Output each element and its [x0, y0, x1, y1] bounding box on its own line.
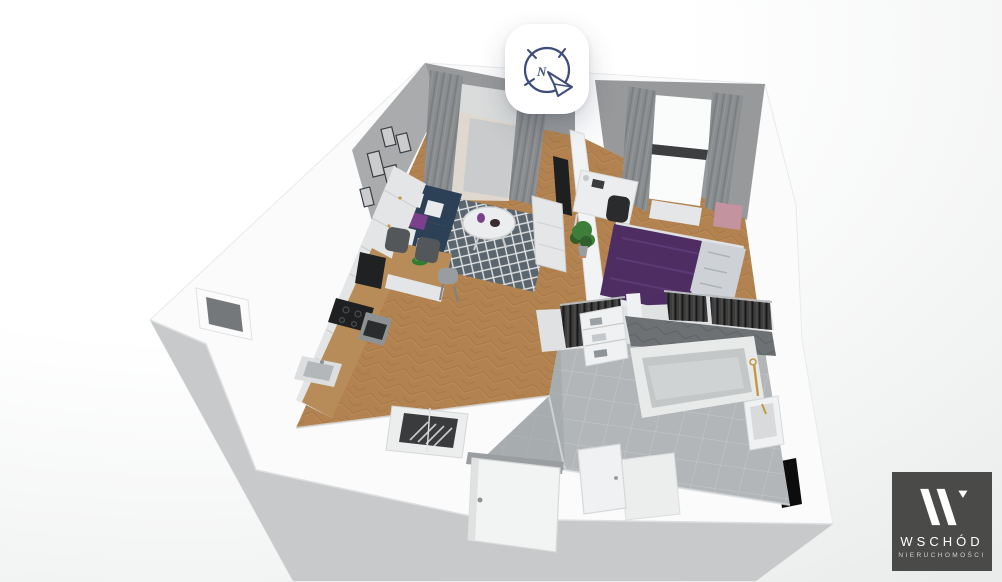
nightstand-pink — [713, 202, 743, 230]
compass-north-label: N — [536, 64, 547, 79]
floorplan-3d-view[interactable] — [0, 0, 1002, 582]
shelf-unit — [580, 306, 628, 366]
entrance-door — [468, 458, 560, 552]
compass-button[interactable]: N — [505, 24, 589, 114]
logo-mark-w — [913, 487, 971, 527]
door-handle — [478, 498, 483, 503]
logo-name: WSCHÓD — [900, 534, 983, 549]
screenshot-root: N WSCHÓD NIERUCHOMOŚCI — [0, 0, 1002, 582]
coffee-machine — [355, 252, 386, 289]
bathroom-door — [578, 444, 626, 514]
compass-icon: N — [517, 38, 577, 100]
bathroom-sink — [744, 396, 784, 450]
shower-tray — [620, 453, 680, 520]
wine-cabinet — [386, 406, 468, 458]
logo-subtitle: NIERUCHOMOŚCI — [898, 552, 985, 559]
hallway — [466, 452, 564, 552]
brand-logo: WSCHÓD NIERUCHOMOŚCI — [892, 472, 992, 571]
tv-sideboard — [532, 196, 566, 272]
